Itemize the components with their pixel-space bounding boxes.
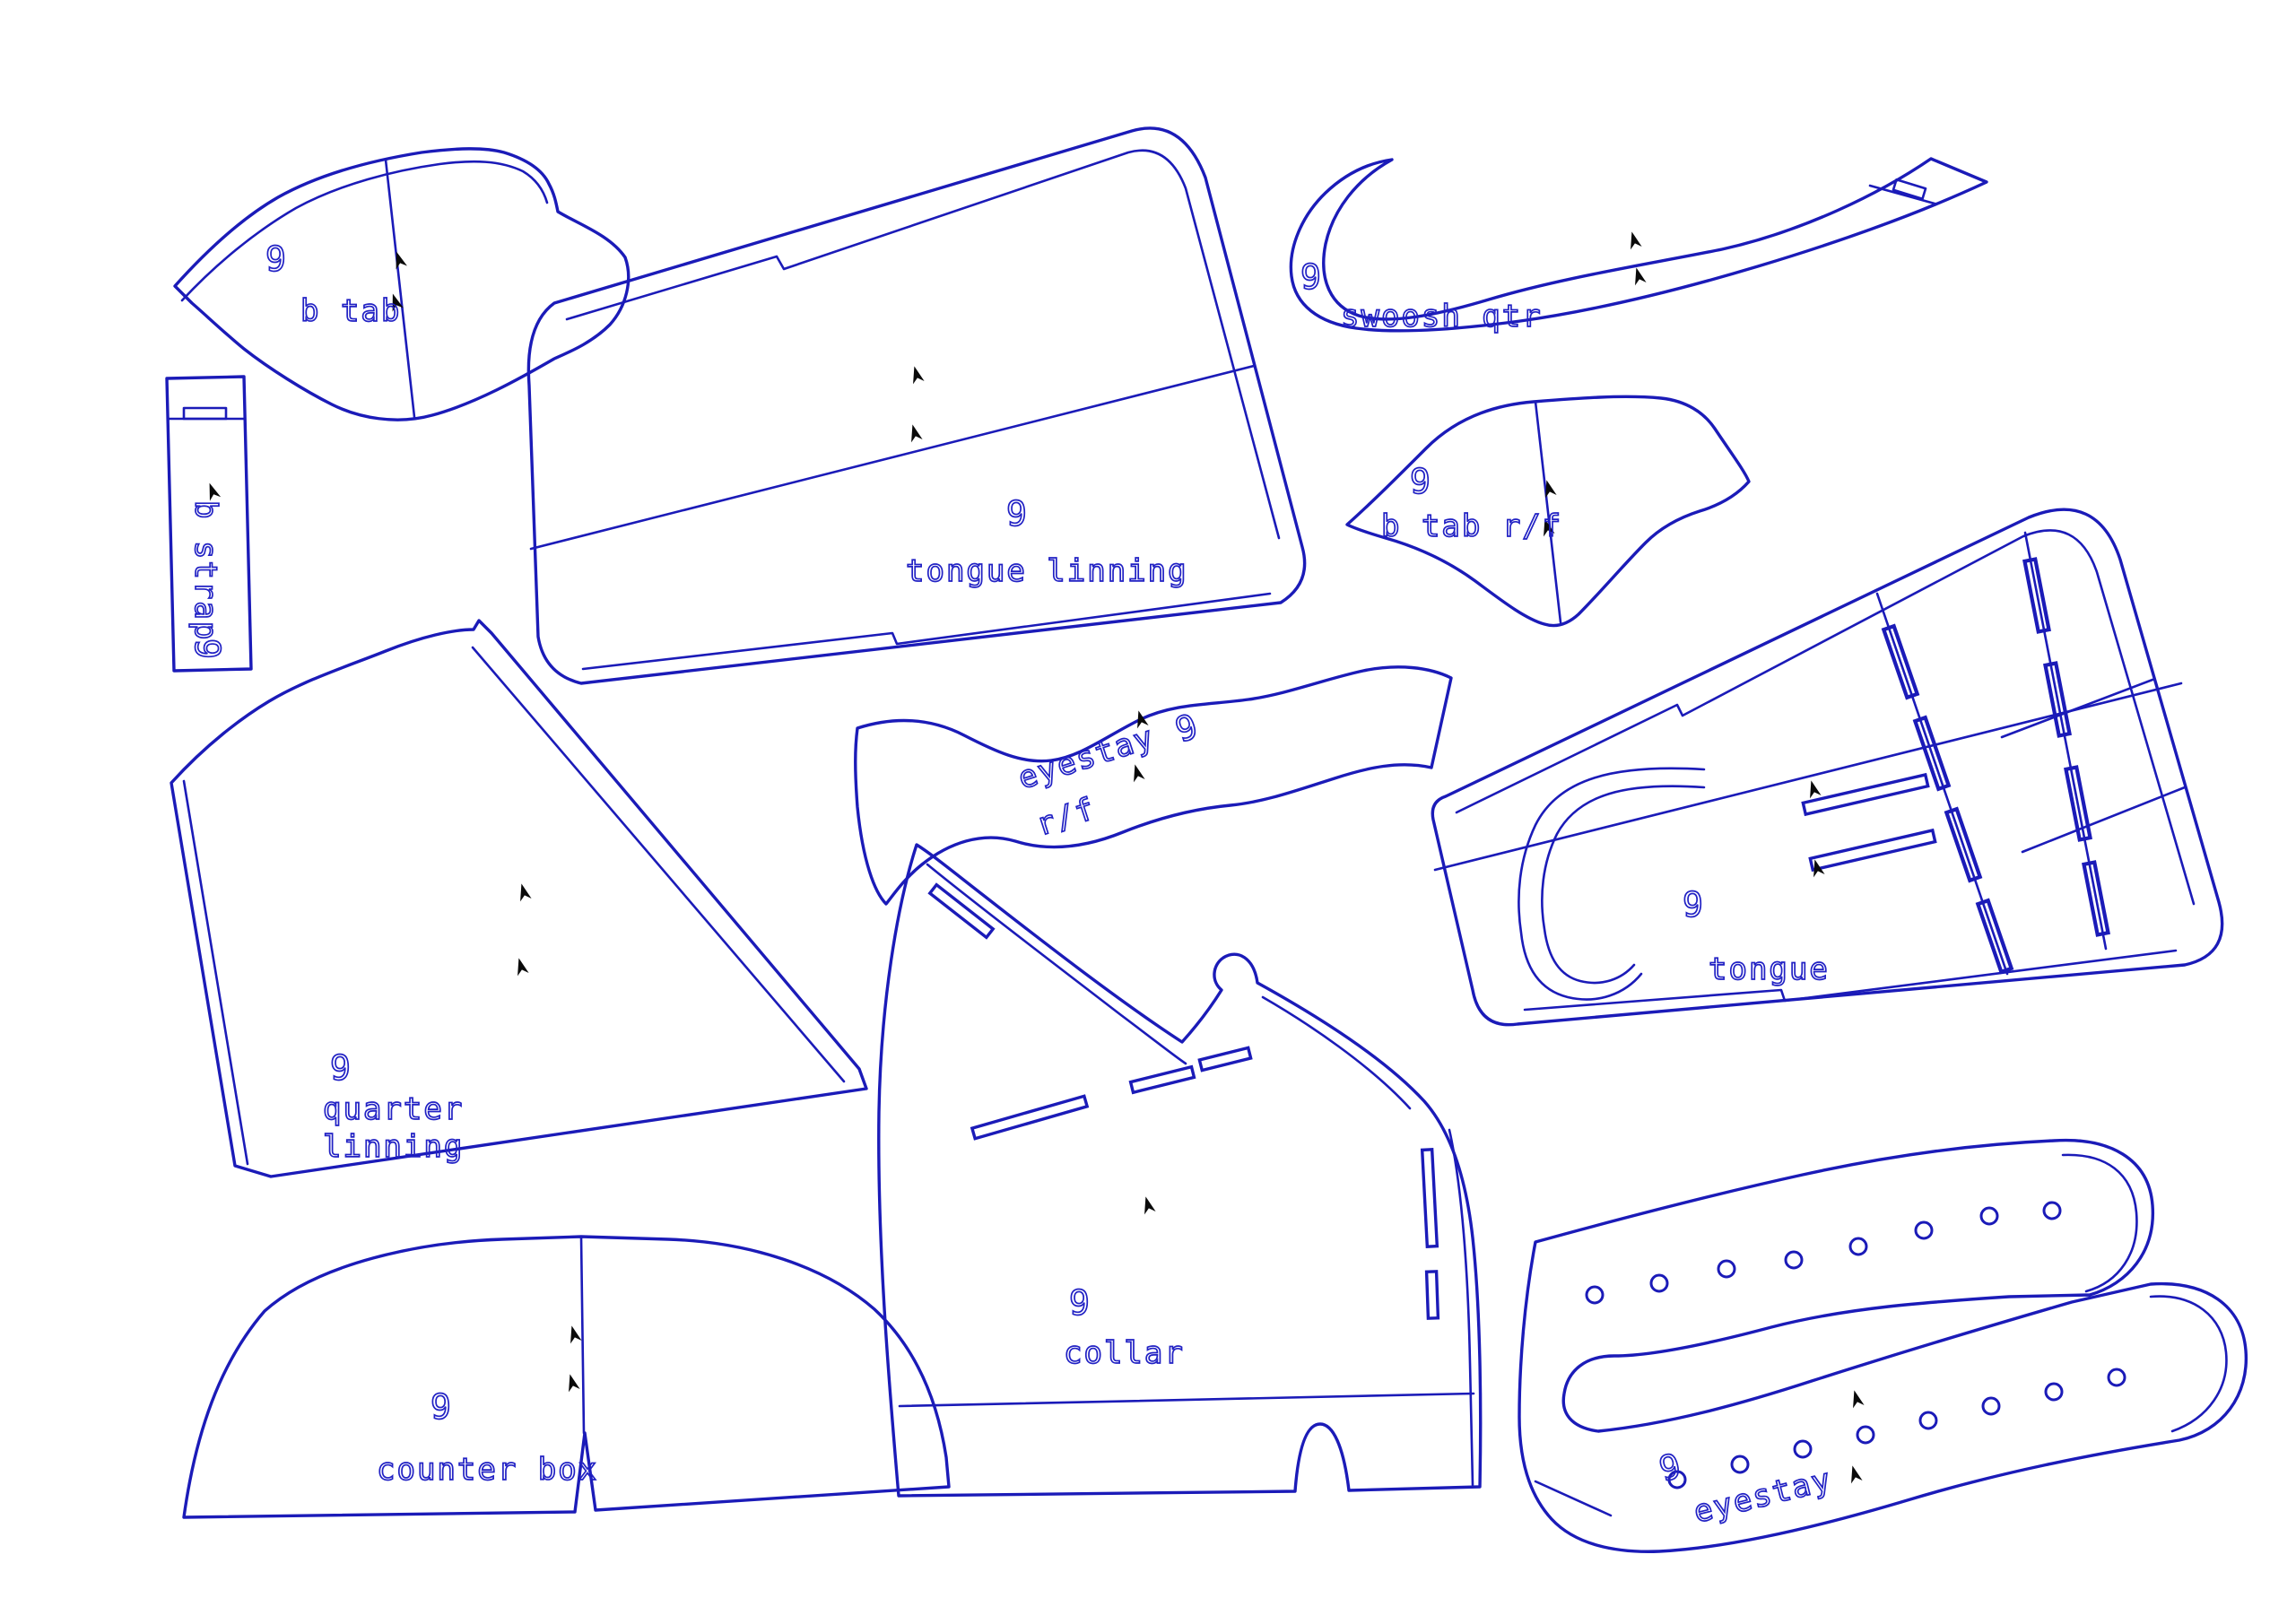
collar-outline bbox=[879, 845, 1481, 1496]
grain-arrow-icon bbox=[907, 423, 922, 443]
tongue-linning-stitch-bottom bbox=[583, 594, 1270, 669]
eyelet-hole bbox=[1850, 1238, 1866, 1255]
grain-arrow-icon bbox=[1129, 763, 1144, 783]
eyelet-hole bbox=[1786, 1252, 1802, 1268]
eyelet-hole bbox=[1795, 1441, 1811, 1457]
grain-arrow-icon bbox=[513, 957, 528, 977]
collar-slot bbox=[1131, 1067, 1195, 1093]
grain-arrow-icon bbox=[1541, 479, 1556, 499]
tongue-stitch-top bbox=[1457, 530, 2194, 904]
quarter-linning-size: 9 bbox=[330, 1048, 352, 1088]
collar-top-band-stitch bbox=[927, 864, 1186, 1064]
b-strap-size: 9 bbox=[187, 638, 227, 661]
collar-label: collar bbox=[1064, 1335, 1185, 1371]
swoosh-tail-notch bbox=[1893, 179, 1926, 198]
piece-tongue-linning: 9 tongue linning bbox=[528, 128, 1304, 683]
grain-arrow-icon bbox=[1848, 1389, 1864, 1409]
swoosh-qtr-label: swoosh qtr bbox=[1341, 299, 1543, 334]
eyelet-hole bbox=[1857, 1427, 1874, 1443]
eyestay-outline bbox=[1519, 1141, 2246, 1552]
eyestay-label: eyestay bbox=[1691, 1462, 1836, 1531]
quarter-linning-outline bbox=[171, 621, 866, 1177]
pattern-canvas: 9 b tab b strap 9 9 tongue linning 9 swo… bbox=[0, 0, 2296, 1624]
collar-slot bbox=[1427, 1272, 1439, 1318]
b-strap-label: b strap bbox=[187, 500, 223, 641]
grain-arrow-icon bbox=[516, 882, 531, 902]
tongue-stitch-bottom bbox=[1525, 951, 2176, 1010]
tongue-cross-line bbox=[2022, 787, 2185, 852]
counter-box-centerline bbox=[581, 1237, 584, 1433]
collar-slot bbox=[1199, 1047, 1250, 1070]
eyestay-rf-outline bbox=[856, 667, 1451, 904]
eyestay-size: 9 bbox=[1656, 1446, 1687, 1489]
b-tab-centerline bbox=[386, 160, 414, 417]
grain-arrow-icon bbox=[1847, 1464, 1862, 1484]
tongue-slot-thin bbox=[1810, 830, 1935, 870]
piece-counter-box: 9 counter box bbox=[184, 1237, 949, 1517]
eyestay-tip-fold-upper bbox=[2063, 1155, 2136, 1291]
b-tab-rf-size: 9 bbox=[1410, 462, 1432, 501]
tongue-linning-outline bbox=[528, 128, 1304, 683]
grain-arrow-icon bbox=[566, 1324, 581, 1344]
tongue-linning-size: 9 bbox=[1006, 494, 1029, 534]
eyestay-bend-cut-line bbox=[1535, 1481, 1611, 1515]
grain-arrow-icon bbox=[1626, 230, 1641, 250]
tongue-cross-line bbox=[2002, 680, 2152, 737]
b-tab-label: b tab bbox=[300, 293, 401, 329]
tongue-label: tongue bbox=[1709, 951, 1830, 987]
piece-quarter-linning: 9 quarter linning bbox=[171, 621, 866, 1177]
grain-arrow-icon bbox=[909, 365, 924, 385]
eyelet-hole bbox=[1916, 1222, 1932, 1238]
piece-b-strap: b strap 9 bbox=[167, 377, 251, 671]
tongue-slot-thin bbox=[1803, 775, 1927, 814]
eyelet-hole bbox=[2046, 1384, 2062, 1400]
b-tab-stitch-line bbox=[182, 161, 547, 300]
eyestay-rf-label-line1: eyestay bbox=[1013, 719, 1159, 797]
collar-size: 9 bbox=[1069, 1283, 1091, 1323]
tongue-size: 9 bbox=[1683, 885, 1705, 925]
piece-eyestay-rf: 9 eyestay r/f bbox=[856, 667, 1451, 904]
eyestay-tip-fold-lower bbox=[2151, 1297, 2226, 1431]
pattern-drawing: 9 b tab b strap 9 9 tongue linning 9 swo… bbox=[0, 0, 2296, 1624]
piece-swoosh-qtr: 9 swoosh qtr bbox=[1291, 159, 1987, 334]
collar-bottom-band-line bbox=[900, 1394, 1474, 1406]
eyelet-hole bbox=[1983, 1398, 1999, 1414]
eyelet-hole bbox=[1981, 1208, 1997, 1224]
eyelet-hole bbox=[2044, 1203, 2060, 1219]
b-strap-notch bbox=[184, 408, 226, 419]
quarter-linning-diagonal-band bbox=[473, 647, 844, 1081]
tongue-linning-stitch-top bbox=[567, 151, 1279, 538]
grain-arrow-icon bbox=[1805, 779, 1821, 799]
swoosh-qtr-size: 9 bbox=[1300, 257, 1323, 297]
tongue-j-slot-inner bbox=[1542, 786, 1704, 983]
tongue-linning-label: tongue linning bbox=[906, 553, 1188, 589]
tongue-linning-mid-line bbox=[531, 366, 1254, 549]
eyestay-rf-size: 9 bbox=[1170, 706, 1204, 751]
piece-collar: 9 collar bbox=[879, 845, 1481, 1496]
counter-box-label: counter box bbox=[377, 1452, 598, 1488]
quarter-linning-left-band bbox=[184, 781, 248, 1164]
tongue-lace-column-line bbox=[1877, 594, 2007, 974]
eyelet-hole bbox=[1732, 1456, 1748, 1472]
b-tab-rf-label: b tab r/f bbox=[1381, 508, 1562, 544]
grain-arrow-icon bbox=[391, 249, 407, 269]
quarter-linning-label-line1: quarter bbox=[323, 1091, 464, 1127]
piece-tongue: 9 tongue bbox=[1432, 509, 2222, 1025]
grain-arrow-icon bbox=[204, 481, 221, 500]
eyelet-hole bbox=[1920, 1412, 1936, 1429]
tongue-j-slot-outer bbox=[1518, 769, 1704, 1000]
quarter-linning-label-line2: linning bbox=[323, 1129, 464, 1165]
piece-eyestay: 9 eyestay bbox=[1519, 1141, 2246, 1552]
collar-sweep-stitch bbox=[1263, 997, 1410, 1108]
eyestay-rf-label-line2: r/f bbox=[1031, 791, 1100, 844]
grain-arrow-icon bbox=[1140, 1195, 1155, 1215]
collar-slot bbox=[972, 1096, 1087, 1138]
tongue-lace-column-line bbox=[2025, 533, 2106, 949]
counter-box-size: 9 bbox=[430, 1387, 453, 1427]
eyelet-hole bbox=[2109, 1369, 2125, 1385]
collar-right-band bbox=[1449, 1130, 1473, 1485]
b-tab-size: 9 bbox=[265, 239, 288, 279]
eyelet-hole bbox=[1651, 1275, 1667, 1291]
piece-b-tab-rf: 9 b tab r/f bbox=[1347, 396, 1749, 625]
collar-slot bbox=[1422, 1150, 1438, 1246]
grain-arrow-icon bbox=[564, 1373, 579, 1393]
eyelet-hole bbox=[1718, 1261, 1735, 1277]
eyelet-hole bbox=[1587, 1287, 1603, 1303]
grain-arrow-icon bbox=[1631, 266, 1646, 286]
